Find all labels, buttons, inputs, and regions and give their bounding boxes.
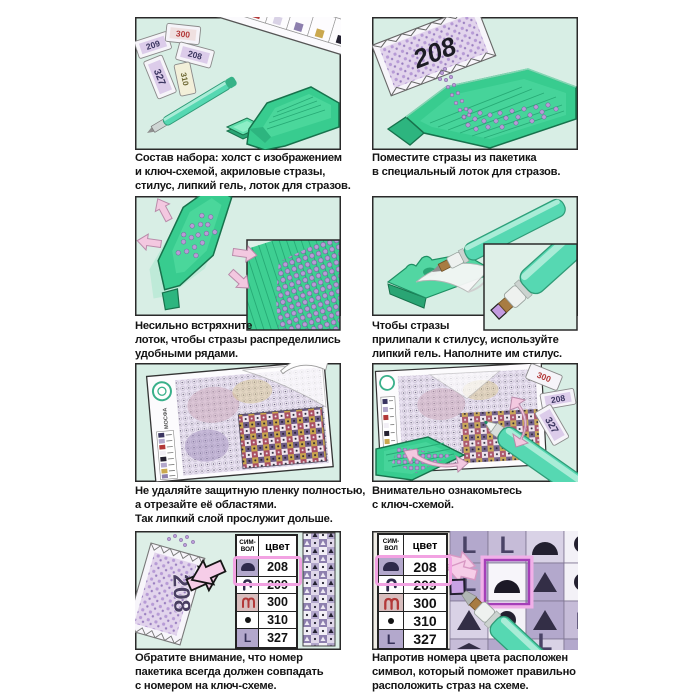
step-3-caption: Несильно встряхните лоток, чтобы стразы … [135, 320, 370, 362]
key-chart-canvas: МОСФА [146, 363, 338, 482]
color-key-table: СИМ- ВОЛ цвет 208 209 300 310 L 327 [377, 533, 448, 650]
symbol-column-header: СИМ- ВОЛ [237, 536, 259, 559]
symbol-cell-dome [237, 559, 259, 577]
dot-icon [245, 617, 251, 623]
symbol-cell-double-arch [379, 594, 404, 612]
step-1-caption: Состав набора: холст с изображением и кл… [135, 152, 370, 194]
color-key-table: СИМ- ВОЛ цвет 208 209 300 310 L 327 [235, 534, 298, 649]
color-value: 209 [259, 577, 296, 595]
step-7-caption: Обратите внимание, что номер пакетика вс… [135, 652, 370, 694]
dome-icon [241, 563, 255, 571]
dot-icon [388, 618, 394, 624]
step-5-caption: Не удаляйте защитную пленку полностью, а… [135, 485, 370, 527]
color-column-header: цвет [259, 536, 296, 559]
color-column-header: цвет [404, 535, 446, 558]
step-2-caption: Поместите стразы из пакетика в специальн… [372, 152, 607, 180]
color-value: 209 [404, 576, 446, 594]
step-6-illustration: 300 208 327 [372, 363, 578, 482]
symbol-cell-letter: L [237, 629, 259, 647]
hook-icon [241, 578, 254, 591]
instruction-sheet: 209 300 208 327 [0, 0, 700, 700]
brand-logo-icon [152, 381, 172, 401]
letter-L-icon: L [387, 632, 396, 646]
step-8-caption: Напротив номера цвета расположен символ,… [372, 652, 607, 694]
color-value: 300 [404, 594, 446, 612]
symbol-cell-dome [379, 558, 404, 576]
svg-text:300: 300 [175, 28, 190, 39]
color-value: 208 [404, 558, 446, 576]
color-value: 310 [259, 612, 296, 630]
chart-strip [303, 533, 335, 646]
color-value: 300 [259, 594, 296, 612]
svg-text:L: L [576, 608, 578, 635]
step-2-illustration: 208 [372, 17, 578, 150]
symbol-cell-hook [237, 577, 259, 595]
double-arch-icon [383, 596, 399, 610]
letter-L-icon: L [244, 632, 251, 644]
step-3-illustration [135, 196, 341, 332]
hook-icon [384, 577, 399, 592]
step-4-illustration [372, 196, 578, 332]
revealed-area [238, 407, 326, 468]
symbol-cell-dot [237, 612, 259, 630]
symbol-cell-hook [379, 576, 404, 594]
dome-icon [383, 562, 399, 571]
color-value: 327 [404, 630, 446, 648]
symbol-column-header: СИМ- ВОЛ [379, 535, 404, 558]
double-arch-icon [241, 596, 255, 608]
step-4-caption: Чтобы стразы прилипали к стилусу, исполь… [372, 320, 607, 362]
color-value: 327 [259, 629, 296, 647]
color-value: 310 [404, 612, 446, 630]
symbol-cell-dot [379, 612, 404, 630]
rhinestone [450, 580, 464, 594]
step-6-caption: Внимательно ознакомьтесь с ключ-схемой. [372, 485, 607, 513]
color-value: 208 [259, 559, 296, 577]
symbol-cell-letter: L [379, 630, 404, 648]
svg-text:L: L [500, 532, 515, 559]
step-1-illustration: 209 300 208 327 [135, 17, 341, 150]
symbol-cell-double-arch [237, 594, 259, 612]
step-5-illustration: МОСФА [135, 363, 341, 482]
